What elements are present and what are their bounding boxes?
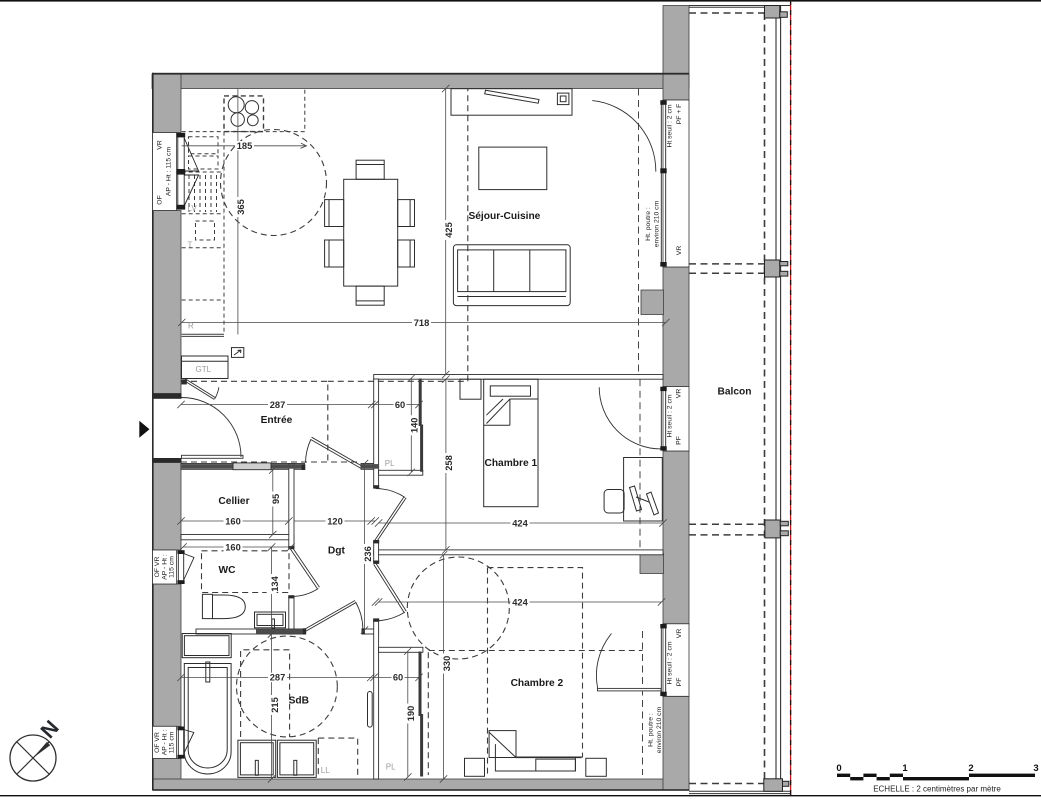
svg-text:environ 210 cm: environ 210 cm xyxy=(654,200,661,247)
svg-text:Ht. poutre :: Ht. poutre : xyxy=(648,713,655,747)
svg-text:OF VR: OF VR xyxy=(154,732,161,753)
svg-text:160: 160 xyxy=(225,542,241,552)
svg-text:258: 258 xyxy=(444,455,454,471)
svg-text:60: 60 xyxy=(395,400,405,410)
svg-text:VR: VR xyxy=(157,140,164,150)
svg-text:PF: PF xyxy=(676,678,683,687)
svg-text:718: 718 xyxy=(414,318,430,328)
svg-text:215: 215 xyxy=(270,697,280,713)
svg-text:424: 424 xyxy=(512,597,528,607)
svg-text:OF: OF xyxy=(157,195,164,204)
svg-text:185: 185 xyxy=(237,141,253,151)
svg-text:Chambre 2: Chambre 2 xyxy=(511,678,564,689)
svg-text:VR: VR xyxy=(676,389,683,399)
svg-text:365: 365 xyxy=(236,199,246,215)
svg-text:0: 0 xyxy=(836,763,841,774)
svg-text:AP - Ht :: AP - Ht : xyxy=(162,554,169,580)
svg-text:Ht seuil : 2 cm: Ht seuil : 2 cm xyxy=(667,104,674,147)
svg-text:Ht seuil : 2 cm: Ht seuil : 2 cm xyxy=(667,394,674,437)
svg-text:LV: LV xyxy=(188,204,198,213)
svg-text:115 cm: 115 cm xyxy=(169,731,176,753)
svg-text:120: 120 xyxy=(327,516,343,526)
svg-text:AP - Ht : 115 cm: AP - Ht : 115 cm xyxy=(166,147,173,197)
svg-text:OF VR: OF VR xyxy=(154,557,161,578)
svg-text:LL: LL xyxy=(321,766,330,775)
svg-text:330: 330 xyxy=(442,656,452,672)
svg-text:VR: VR xyxy=(676,629,683,639)
svg-text:140: 140 xyxy=(410,418,420,434)
svg-text:190: 190 xyxy=(406,706,416,722)
svg-text:SdB: SdB xyxy=(289,696,309,707)
svg-text:287: 287 xyxy=(270,400,286,410)
svg-text:PL: PL xyxy=(385,459,395,468)
svg-text:WC: WC xyxy=(219,565,237,576)
svg-text:95: 95 xyxy=(271,494,281,504)
svg-text:T: T xyxy=(188,241,193,250)
svg-text:Balcon: Balcon xyxy=(718,387,752,398)
svg-text:424: 424 xyxy=(512,518,528,528)
svg-text:ECHELLE : 2 centimètres par mè: ECHELLE : 2 centimètres par mètre xyxy=(873,785,1001,794)
svg-text:R: R xyxy=(188,322,194,331)
svg-text:Ht. poutre :: Ht. poutre : xyxy=(645,207,652,241)
svg-text:Dgt: Dgt xyxy=(328,546,346,557)
svg-text:287: 287 xyxy=(270,673,286,683)
svg-text:134: 134 xyxy=(270,575,280,591)
svg-text:Entrée: Entrée xyxy=(261,415,293,426)
svg-text:GTL: GTL xyxy=(196,365,212,374)
svg-text:PF: PF xyxy=(676,436,683,445)
svg-text:environ 210 cm: environ 210 cm xyxy=(656,706,663,753)
svg-text:2: 2 xyxy=(968,763,973,774)
svg-text:160: 160 xyxy=(225,516,241,526)
svg-text:PL: PL xyxy=(386,763,396,772)
svg-text:Chambre 1: Chambre 1 xyxy=(484,458,537,469)
svg-text:PF + F: PF + F xyxy=(676,104,683,125)
svg-text:Cellier: Cellier xyxy=(218,496,249,507)
svg-text:425: 425 xyxy=(444,222,454,238)
svg-text:Séjour-Cuisine: Séjour-Cuisine xyxy=(468,211,540,222)
svg-text:AP - Ht :: AP - Ht : xyxy=(162,730,169,756)
svg-text:236: 236 xyxy=(363,546,373,562)
svg-text:3: 3 xyxy=(1033,763,1038,774)
svg-text:Ht seuil : 2 cm: Ht seuil : 2 cm xyxy=(667,641,674,684)
svg-text:1: 1 xyxy=(902,763,908,774)
svg-text:VR: VR xyxy=(676,246,683,256)
svg-text:115 cm: 115 cm xyxy=(169,556,176,578)
svg-text:60: 60 xyxy=(393,673,403,683)
